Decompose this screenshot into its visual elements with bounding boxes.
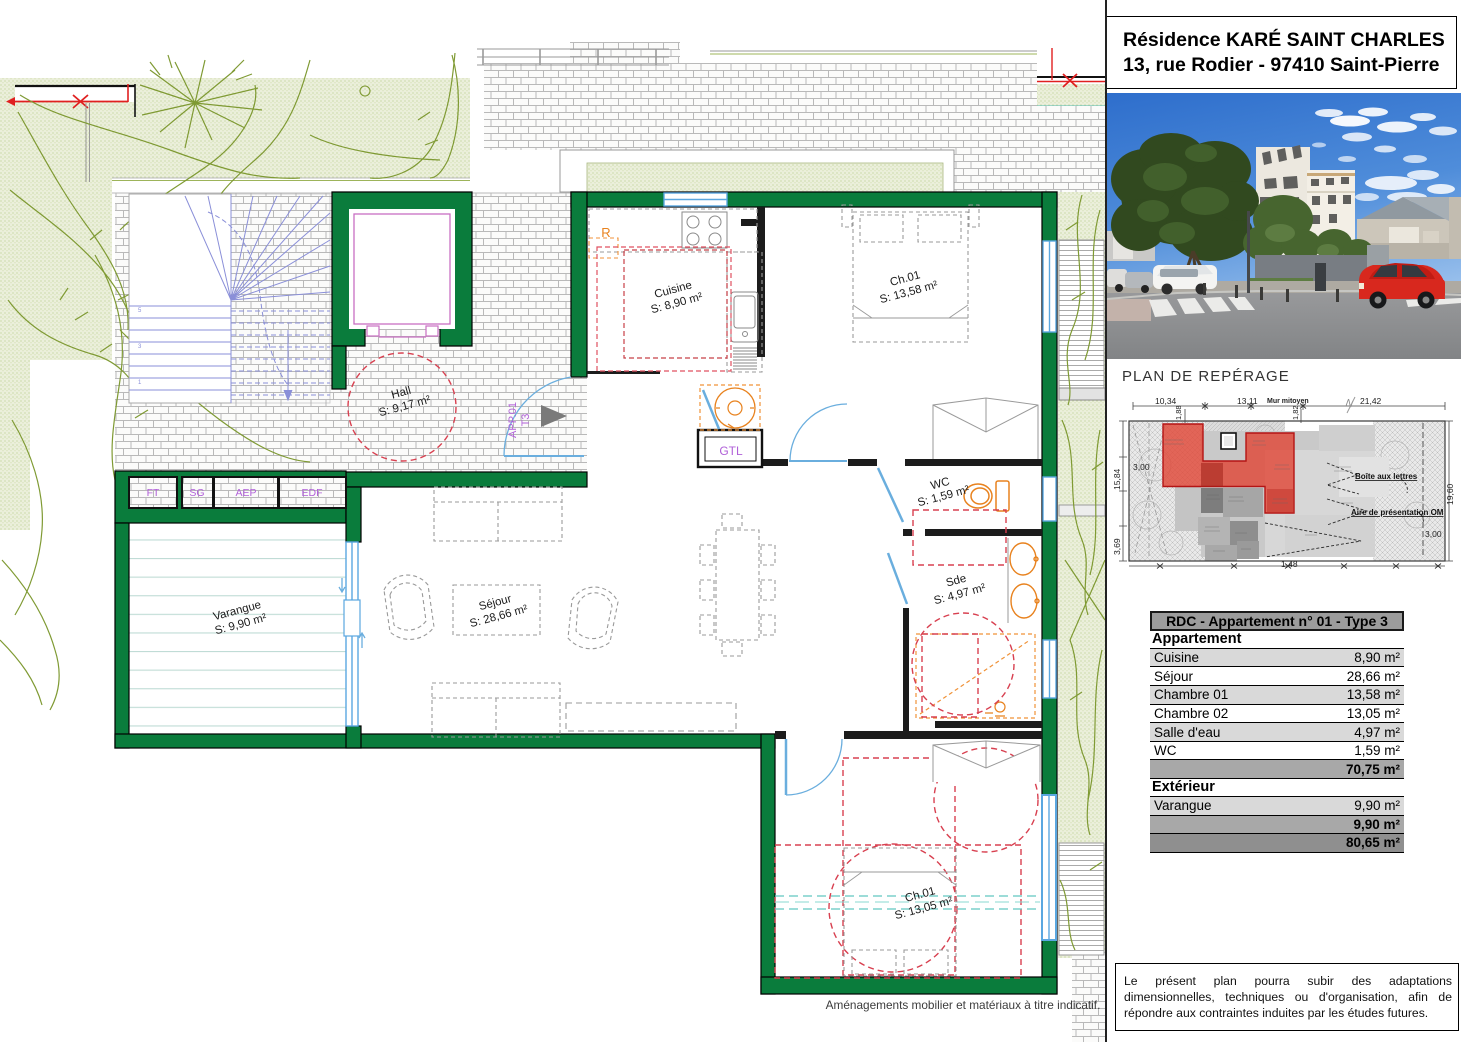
svg-text:19,60: 19,60 xyxy=(1445,483,1455,505)
svg-text:10,34: 10,34 xyxy=(1155,396,1177,406)
svg-text:FT: FT xyxy=(147,487,160,499)
svg-text:15,84: 15,84 xyxy=(1112,468,1122,490)
svg-text:3,69: 3,69 xyxy=(1112,538,1122,555)
svg-text:Aire de présentation OM: Aire de présentation OM xyxy=(1351,508,1444,517)
svg-text:R: R xyxy=(601,225,610,240)
svg-text:Boîte aux lettres: Boîte aux lettres xyxy=(1355,472,1418,481)
svg-text:GTL: GTL xyxy=(719,444,743,458)
svg-text:APP.01: APP.01 xyxy=(507,402,519,438)
svg-text:T3: T3 xyxy=(520,414,532,427)
svg-text:SG: SG xyxy=(189,487,204,499)
svg-text:13,11: 13,11 xyxy=(1237,396,1258,406)
svg-text:AEP: AEP xyxy=(235,487,256,499)
svg-text:Aménagements mobilier et matér: Aménagements mobilier et matériaux à tit… xyxy=(826,998,1101,1012)
svg-text:1,88: 1,88 xyxy=(1174,405,1183,420)
svg-text:Mur mitoyen: Mur mitoyen xyxy=(1267,398,1309,405)
svg-text:1,82: 1,82 xyxy=(1291,405,1300,420)
svg-text:1,48: 1,48 xyxy=(1281,559,1298,569)
svg-text:21,42: 21,42 xyxy=(1360,396,1382,406)
svg-text:3,00: 3,00 xyxy=(1425,529,1442,539)
svg-text:EDF: EDF xyxy=(302,487,323,499)
svg-text:3,00: 3,00 xyxy=(1133,462,1150,472)
